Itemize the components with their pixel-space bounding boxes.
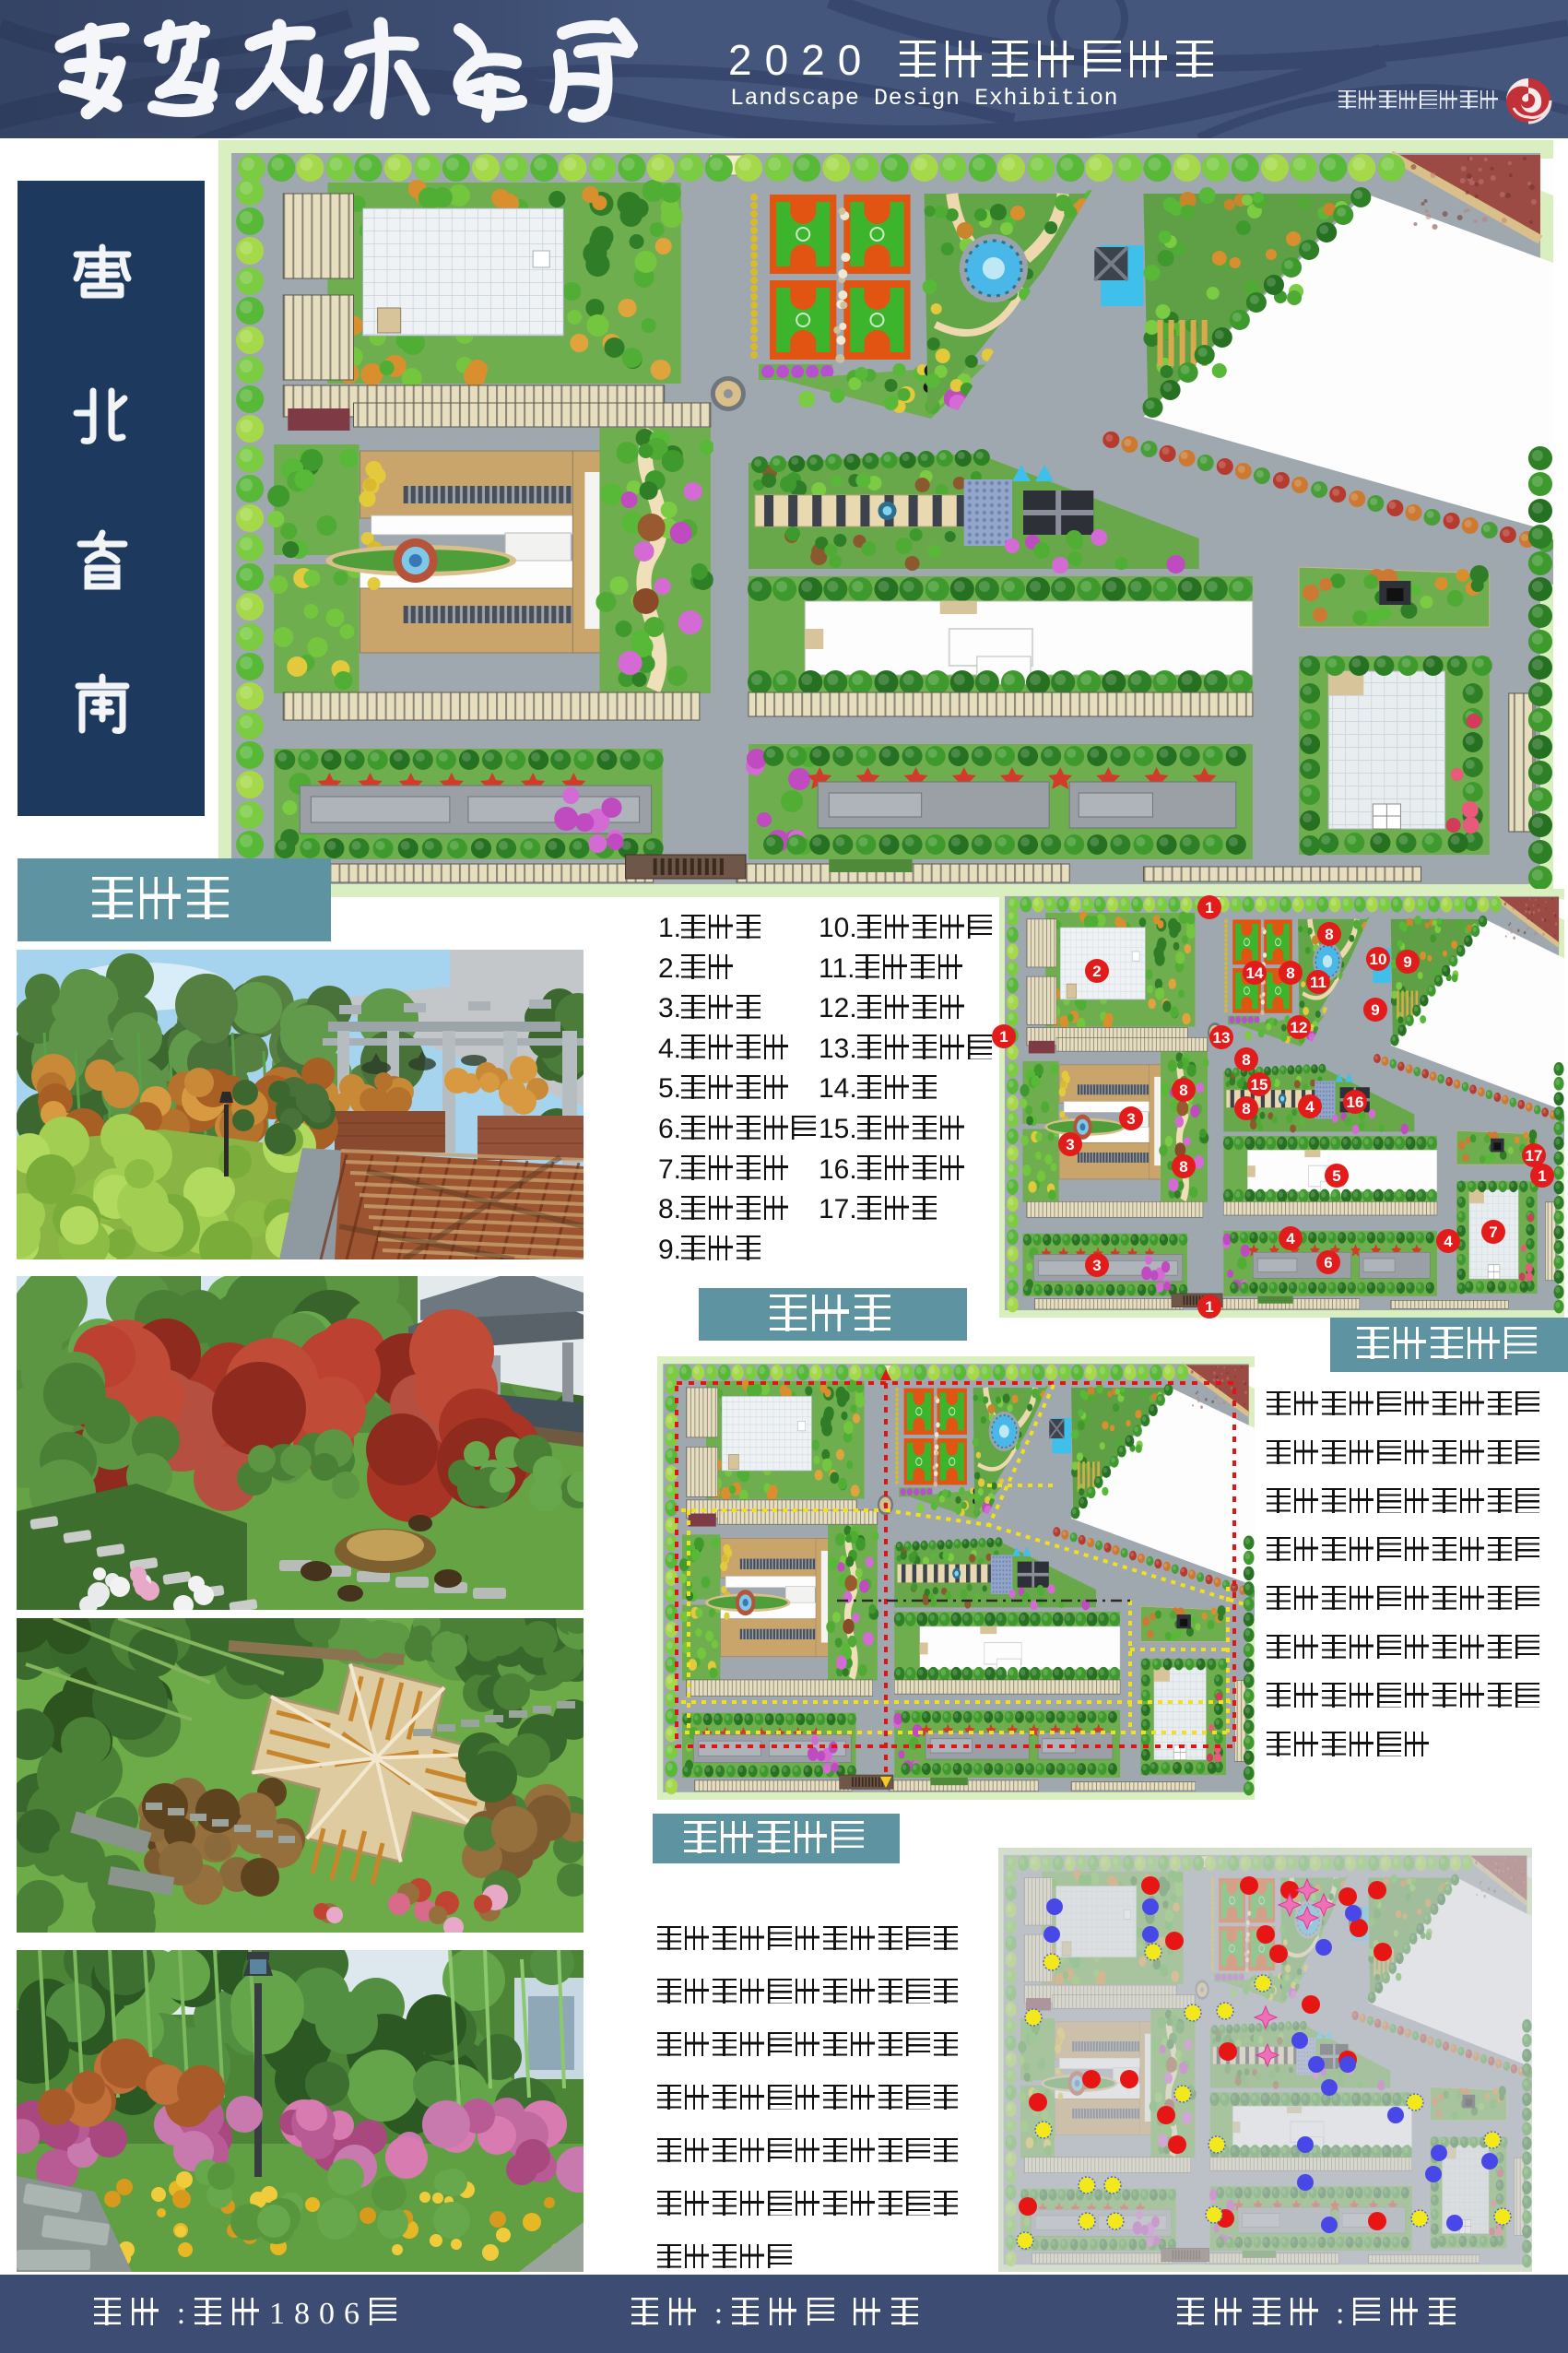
svg-text:12: 12 <box>1291 1019 1308 1036</box>
svg-text:4: 4 <box>1286 1230 1295 1247</box>
svg-text:4: 4 <box>1444 1233 1453 1250</box>
svg-text:2: 2 <box>1092 963 1101 980</box>
svg-text:8: 8 <box>1325 926 1333 943</box>
svg-text:8: 8 <box>1179 1158 1187 1176</box>
svg-text:10: 10 <box>1370 951 1387 968</box>
svg-text:6: 6 <box>1324 1254 1332 1271</box>
svg-text:14: 14 <box>1246 964 1264 982</box>
svg-text:3: 3 <box>1092 1257 1101 1274</box>
svg-text:3: 3 <box>1066 1136 1074 1153</box>
svg-text:1: 1 <box>1205 1298 1213 1316</box>
svg-text:11: 11 <box>1310 974 1326 991</box>
svg-text:8: 8 <box>1242 1100 1250 1117</box>
svg-text:13: 13 <box>1213 1029 1231 1046</box>
svg-text:8: 8 <box>1242 1051 1250 1069</box>
svg-text:1: 1 <box>999 1028 1008 1046</box>
svg-text:1: 1 <box>1538 1167 1546 1185</box>
svg-text:1: 1 <box>1205 899 1213 916</box>
svg-text:4: 4 <box>1305 1098 1315 1116</box>
svg-text:8: 8 <box>1179 1082 1187 1099</box>
svg-text:3: 3 <box>1126 1110 1135 1128</box>
svg-text:16: 16 <box>1347 1094 1364 1111</box>
svg-text:9: 9 <box>1403 953 1411 971</box>
svg-text:9: 9 <box>1371 1001 1379 1019</box>
svg-text:8: 8 <box>1286 964 1294 982</box>
svg-text:17: 17 <box>1526 1147 1543 1165</box>
svg-text:5: 5 <box>1332 1167 1340 1185</box>
svg-text:7: 7 <box>1489 1224 1497 1241</box>
svg-text:15: 15 <box>1251 1076 1268 1094</box>
